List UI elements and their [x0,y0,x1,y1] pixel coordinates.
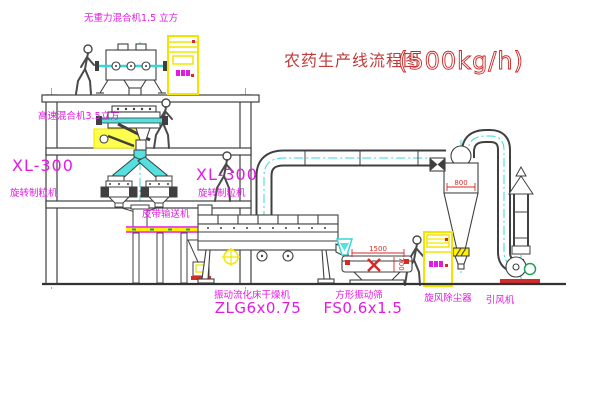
cyclone-width-label: 800 [454,179,467,187]
cyclone: 800 [430,146,478,269]
sieve-length-label: 1500 [369,245,387,253]
granulator-right-name: 旋转制粒机 [198,187,246,199]
person-figure [76,45,94,94]
fan-label: 引风机 [486,294,515,306]
dryer-model: ZLG6x0.75 [215,299,302,317]
gravity-mixer-label: 无重力混合机1.5 立方 [84,12,178,24]
cad-flow-diagram: 800 1500 [0,0,600,403]
belt-conveyor-label: 皮带输送机 [142,208,190,220]
sieve-model: FS0.6x1.5 [324,299,403,317]
high-speed-mixer-label: 高速混合机3.5立方 [38,110,120,122]
sieve-length-dimension: 1500 [352,245,404,257]
butterfly-valve [430,158,445,171]
bucket-elevator-2 [424,232,452,286]
granulator-right-model: XL-300 [196,165,258,184]
belt-conveyor [126,227,198,283]
granulator-left-name: 旋转制粒机 [10,187,58,199]
title-capacity: (500kg/h) [398,47,524,75]
diagram-canvas: 800 1500 [0,0,600,403]
exhaust-stack [509,167,533,254]
gravity-mixer [95,44,167,95]
vibrating-sieve: 1500 700 [337,239,412,284]
dryer-exhaust-duct [264,150,446,220]
fluid-bed-dryer [198,205,348,283]
sieve-height-label: 700 [397,257,405,270]
bucket-elevator-1 [168,36,198,94]
cyclone-label: 旋风除尘器 [424,292,472,304]
granulator-left-model: XL-300 [12,156,74,175]
